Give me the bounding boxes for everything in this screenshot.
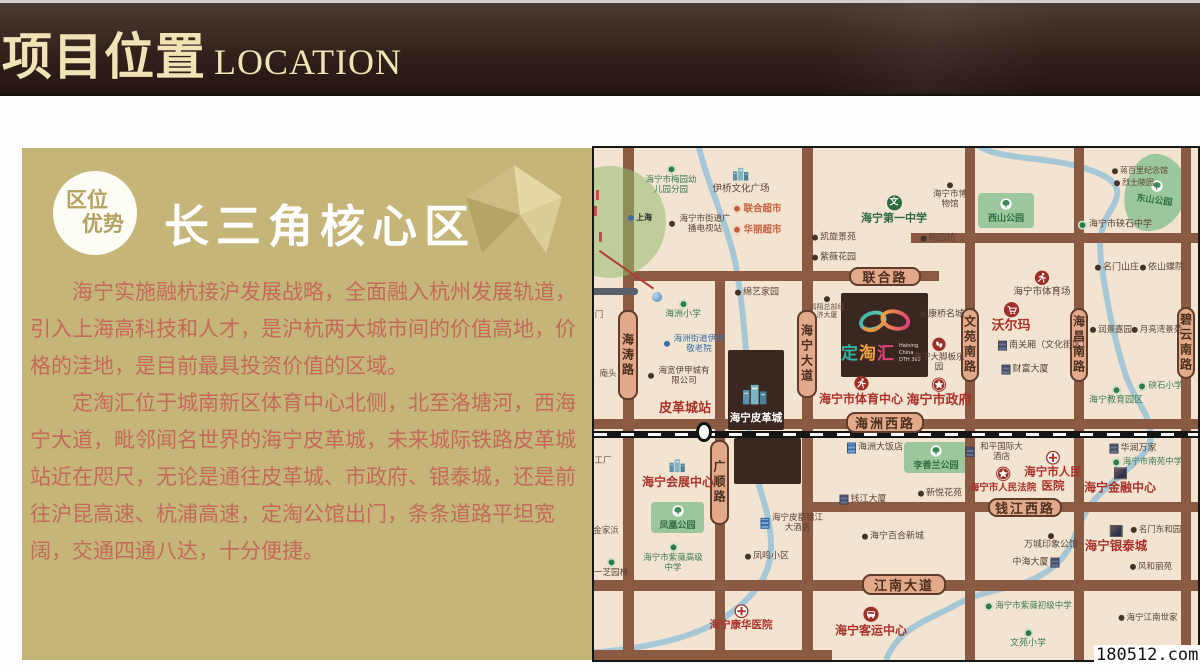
map-poi: 风和丽苑 xyxy=(1130,562,1172,572)
hotel-icon xyxy=(761,518,770,529)
map-poi: 紫薇花园 xyxy=(812,253,856,264)
inset-tiny-text xyxy=(594,206,597,216)
building-photo-icon xyxy=(1109,525,1122,537)
park: 西山公园 xyxy=(978,193,1034,228)
map-poi: 皮革城站 xyxy=(659,401,711,417)
map-poi: 海宁市梅园幼儿园分园 xyxy=(643,165,699,195)
dingtaohui-logo-icon xyxy=(854,306,916,336)
map-poi: 海宁市硖石中学 xyxy=(1078,220,1152,231)
map-poi: 蒋百里纪念馆 xyxy=(1112,166,1168,176)
map-poi: 海宁客运中心 xyxy=(835,606,907,637)
location-map: 西山公园东山公园凤凰公园李善兰公园海涛路广顺路海宁大道文苑南路海昌南路碧云南路联… xyxy=(592,146,1200,662)
buildings-icon xyxy=(730,165,752,182)
park-name: 西山公园 xyxy=(988,211,1024,224)
road-name: 碧云南路 xyxy=(1178,313,1195,373)
intro-paragraph-2: 定淘汇位于城南新区体育中心北侧，北至洛塘河，西海宁大道，毗邻闻名世界的海宁皮革城… xyxy=(30,385,586,570)
building-icon xyxy=(1109,444,1118,454)
map-poi-label: 海宁市政府 xyxy=(906,393,971,409)
page-title: 项目位置LOCATION xyxy=(2,17,402,89)
map-poi: 绵艺家园 xyxy=(735,288,779,299)
map-poi-label: 海宁江南世家 xyxy=(1126,613,1177,623)
dingtaohui-logo-text: 定淘汇 xyxy=(841,339,895,364)
map-poi-label: 华丽超市 xyxy=(743,224,781,235)
school-wen-icon: 文 xyxy=(887,195,902,210)
map-poi: 工厂 xyxy=(594,456,611,466)
map-poi: 润景嘉园 xyxy=(1090,325,1132,335)
map-poi-label: 绵艺家园 xyxy=(743,288,779,299)
map-poi: 名门山庄 xyxy=(1095,263,1139,274)
government-star-icon xyxy=(931,377,946,392)
map-poi-label: 金家浜 xyxy=(593,526,619,536)
intro-text: 海宁实施融杭接沪发展战略，全面融入杭州发展轨道，引入上海高科技和人才，是沪杭两大… xyxy=(30,274,586,570)
shopping-cart-icon xyxy=(1003,302,1019,318)
map-poi: 华润万家 xyxy=(1109,444,1156,455)
poi-dot-icon xyxy=(1131,527,1137,533)
map-poi-label: 鸿翔总部经济大厦 xyxy=(807,303,847,320)
hospital-cross-icon xyxy=(1046,451,1060,465)
map-poi-label: 皮革城站 xyxy=(659,401,711,417)
map-poi: 凯旋景苑 xyxy=(812,233,856,244)
map-poi: 伊桥文化广场 xyxy=(712,165,769,194)
inset-bridge-bar xyxy=(592,288,638,295)
map-poi-label: 梅园坊 xyxy=(928,234,955,245)
city-block xyxy=(734,438,801,484)
poi-dot-icon xyxy=(918,491,924,497)
market-icon xyxy=(732,225,741,234)
map-poi: 中海大厦 xyxy=(1012,558,1059,569)
header: 项目位置LOCATION xyxy=(0,0,1200,96)
map-poi: 南关厢（文化街区） xyxy=(998,341,1090,352)
map-poi-label: 海宁市紫薇高级中学 xyxy=(641,553,705,573)
map-poi: 文海宁第一中学 xyxy=(861,195,927,224)
map-poi: 门 xyxy=(595,310,604,320)
road-horizontal xyxy=(594,650,832,660)
map-poi-label: 海宁百合新城 xyxy=(870,532,924,543)
school-dot-icon xyxy=(606,558,615,567)
map-poi-label: 海宁市南苑中学 xyxy=(1123,457,1183,467)
map-poi: 海宁百合新城 xyxy=(862,532,924,543)
map-poi-label: 硖石小学 xyxy=(1148,381,1182,391)
map-poi: 文苑小学 xyxy=(1010,629,1046,650)
map-poi-label: 和平国际大酒店 xyxy=(977,442,1027,462)
map-poi-label: 海宁市硖石中学 xyxy=(1089,220,1152,231)
bus-icon xyxy=(863,606,879,622)
leather-city-label: 海宁皮革城 xyxy=(730,410,783,425)
map-poi: 海宁皮都锦江大酒店 xyxy=(761,513,824,533)
watermark: 180512.com xyxy=(1094,645,1200,665)
school-dot-icon xyxy=(1112,458,1121,467)
poi-dot-icon xyxy=(1090,327,1096,333)
map-poi-label: 凯旋景苑 xyxy=(820,233,856,244)
building-icon xyxy=(966,447,975,457)
map-poi-label: 新悦花苑 xyxy=(926,489,962,500)
inset-marker-ball xyxy=(652,292,662,302)
building-photo-icon xyxy=(1113,467,1126,479)
map-poi: 财富大厦 xyxy=(1001,365,1048,376)
map-poi-label: 沃尔玛 xyxy=(991,319,1030,335)
map-poi-label: 月亮湾景苑 xyxy=(1140,325,1183,335)
map-poi: 名门东和园 xyxy=(1131,525,1182,535)
blue-dot-icon xyxy=(664,341,670,347)
poi-dot-icon xyxy=(920,312,926,318)
map-poi-label: 烈士陵园 xyxy=(1122,178,1154,188)
map-poi-label: 海宁会展中心 xyxy=(642,475,714,489)
map-poi-label: 海洲街道伊桥敬老院 xyxy=(672,334,726,354)
railway-station-marker xyxy=(696,422,712,442)
map-poi-label: 海宁市街道广播电视站 xyxy=(677,214,733,234)
map-poi-label: 伊桥文化广场 xyxy=(712,183,769,194)
map-poi: 海洲大饭店 xyxy=(847,443,903,454)
map-poi: 海宁大脚板乐园 xyxy=(911,337,967,372)
map-poi-label: 海宁大脚板乐园 xyxy=(911,352,967,372)
map-poi: 依山蝶院 xyxy=(1140,263,1184,274)
poi-dot-icon xyxy=(812,235,818,241)
map-poi: 海宁市街道广播电视站 xyxy=(669,214,733,234)
map-poi: 海宁市紫薇初级中学 xyxy=(984,601,1072,611)
map-poi-label: 工厂 xyxy=(594,456,611,466)
badge-line2: 优势 xyxy=(82,213,124,237)
map-poi-label: 名门山庄 xyxy=(1103,263,1139,274)
map-poi: 海宁市人民医院 xyxy=(1024,451,1082,494)
map-poi-label: 海宁皮都锦江大酒店 xyxy=(772,513,824,533)
map-poi-label: 风和丽苑 xyxy=(1138,562,1172,572)
road-name: 海涛路 xyxy=(620,333,637,378)
map-poi: 联合超市 xyxy=(732,203,781,214)
map-poi: 一芝园林 xyxy=(594,558,628,578)
poi-dot-icon xyxy=(920,236,926,242)
map-poi-label: 海宽伊甲城有限公司 xyxy=(656,366,712,386)
road-name: 联合路 xyxy=(862,267,907,286)
map-poi-label: 庵头 xyxy=(599,369,616,379)
map-poi-label: 南关厢（文化街区） xyxy=(1009,341,1090,352)
road-label: 碧云南路 xyxy=(1177,307,1195,379)
map-poi: 沃尔玛 xyxy=(991,302,1030,335)
park-name: 东山公园 xyxy=(1136,190,1173,208)
building-icon xyxy=(1051,558,1060,568)
sports-runner-icon xyxy=(853,376,868,391)
map-poi-label: 财富大厦 xyxy=(1012,365,1048,376)
poi-dot-icon xyxy=(862,534,868,540)
map-poi-label: 海宁市梅园幼儿园分园 xyxy=(643,175,699,195)
map-poi: 海宁市体育中心 xyxy=(819,376,903,406)
road-label: 江南大道 xyxy=(862,574,946,595)
map-poi-label: 依山蝶院 xyxy=(1148,263,1184,274)
hotel-icon xyxy=(847,443,856,454)
map-poi-label: 海宁市博物馆 xyxy=(932,189,968,209)
map-poi: 硖石小学 xyxy=(1137,381,1182,391)
map-poi: 华丽超市 xyxy=(732,224,781,235)
poi-dot-icon xyxy=(1112,168,1118,174)
map-poi-label: 海宁客运中心 xyxy=(835,623,907,637)
map-poi-label: 一芝园林 xyxy=(594,568,628,578)
map-poi: 海宁会展中心 xyxy=(642,457,714,489)
park-tree-icon xyxy=(930,445,942,457)
school-dot-icon xyxy=(1078,220,1087,229)
advantage-badge: 区位 优势 xyxy=(53,171,137,255)
road-label: 海洲西路 xyxy=(846,412,924,433)
park-tree-icon xyxy=(672,505,684,517)
poi-dot-icon xyxy=(669,221,675,227)
school-dot-icon xyxy=(984,602,993,611)
map-poi-label: 康桥名城 xyxy=(928,310,964,321)
map-poi-label: 文苑小学 xyxy=(1010,639,1046,650)
map-poi: 钱江大厦 xyxy=(839,495,886,506)
map-poi: 新悦花苑 xyxy=(918,489,962,500)
map-poi: 海宁康华医院 xyxy=(710,604,773,632)
poi-dot-icon xyxy=(648,373,654,379)
inset-tiny-text xyxy=(599,232,602,242)
park: 李善兰公园 xyxy=(904,442,968,473)
railway-dashes xyxy=(594,433,1198,436)
road-name: 海宁大道 xyxy=(799,324,816,384)
map-poi: 海宁市体育场 xyxy=(1013,270,1070,297)
map-poi-label: 海宁市体育场 xyxy=(1013,286,1070,297)
poi-dot-icon xyxy=(745,554,751,560)
map-poi-label: 名门东和园 xyxy=(1139,525,1182,535)
building-icon xyxy=(1001,365,1010,375)
map-poi: 海宁江南世家 xyxy=(1118,613,1177,623)
shanghai-label: 上海 xyxy=(628,212,652,223)
map-poi-label: 海宁市人民医院 xyxy=(1024,466,1082,494)
badge-line1: 区位 xyxy=(66,189,108,213)
park-tree-icon xyxy=(1000,198,1012,210)
school-dot-icon xyxy=(669,543,678,552)
map-poi: 凤鸣小区 xyxy=(745,552,789,563)
map-poi: 海宁市紫薇高级中学 xyxy=(641,543,705,573)
map-poi: 烈士陵园 xyxy=(1114,178,1154,188)
leather-city-block: 海宁皮革城 xyxy=(728,350,784,430)
map-poi-label: 海洲小学 xyxy=(665,310,701,321)
map-poi-label: 中海大厦 xyxy=(1012,558,1048,569)
panel-title: 长三角核心区 xyxy=(164,190,476,255)
map-poi-label: 海宁教育园区 xyxy=(1089,396,1143,407)
page-title-en: LOCATION xyxy=(214,42,402,82)
map-poi-label: 紫薇花园 xyxy=(820,253,856,264)
map-poi-label: 海宁第一中学 xyxy=(861,211,927,224)
map-poi-label: 海宁市体育中心 xyxy=(819,392,903,406)
map-poi: 万城印象公馆 xyxy=(1024,533,1078,551)
page: 项目位置LOCATION 区位 优势 长三角核心区 海宁实施融杭接沪发展战略，全… xyxy=(0,0,1200,672)
map-poi-label: 海宁康华医院 xyxy=(710,619,773,632)
park: 凤凰公园 xyxy=(651,502,704,533)
school-dot-icon xyxy=(678,300,687,309)
map-poi: 金家浜 xyxy=(593,526,619,536)
poi-dot-icon xyxy=(947,182,953,188)
poi-dot-icon xyxy=(735,290,741,296)
map-poi: 和平国际大酒店 xyxy=(966,442,1027,462)
map-poi: 月亮湾景苑 xyxy=(1132,325,1183,335)
map-poi-label: 钱江大厦 xyxy=(850,495,886,506)
map-poi: 海洲街道伊桥敬老院 xyxy=(664,334,726,354)
map-poi-label: 润景嘉园 xyxy=(1098,325,1132,335)
map-poi: 海宁市政府 xyxy=(906,377,971,409)
park-name: 李善兰公园 xyxy=(913,458,958,471)
map-poi-label: 门 xyxy=(595,310,604,320)
buildings-icon xyxy=(667,457,689,474)
poi-dot-icon xyxy=(1118,615,1124,621)
poi-dot-icon xyxy=(1048,533,1054,539)
map-poi-label: 万城印象公馆 xyxy=(1024,540,1078,551)
city-dot-icon xyxy=(628,215,634,221)
building-icon xyxy=(998,341,1007,351)
inset-tiny-text xyxy=(596,190,599,200)
poi-dot-icon xyxy=(1140,265,1146,271)
buildings-icon xyxy=(739,381,773,407)
map-poi-label: 凤鸣小区 xyxy=(753,552,789,563)
intro-panel: 区位 优势 长三角核心区 海宁实施融杭接沪发展战略，全面融入杭州发展轨道，引入上… xyxy=(22,148,592,660)
poi-dot-icon xyxy=(824,296,830,302)
poi-dot-icon xyxy=(812,255,818,261)
sports-runner-icon xyxy=(1034,270,1049,285)
market-icon xyxy=(732,204,741,213)
government-star-icon xyxy=(995,466,1010,481)
school-dot-icon xyxy=(1111,386,1120,395)
road-label: 钱江西路 xyxy=(988,498,1062,517)
building-icon xyxy=(839,495,848,505)
road-label: 海宁大道 xyxy=(797,310,817,398)
road-label: 海涛路 xyxy=(618,310,638,400)
road-name: 海洲西路 xyxy=(855,413,915,432)
road-label: 联合路 xyxy=(849,267,921,286)
road-name: 江南大道 xyxy=(874,575,934,594)
gem-decoration-icon xyxy=(458,163,570,263)
page-title-cn: 项目位置 xyxy=(2,29,206,85)
poi-dot-icon xyxy=(1132,327,1138,333)
map-poi: 海宽伊甲城有限公司 xyxy=(648,366,712,386)
map-poi: 海宁市博物馆 xyxy=(932,182,968,209)
map-poi: 庵头 xyxy=(599,369,616,379)
map-poi-label: 联合超市 xyxy=(743,203,781,214)
hospital-cross-icon xyxy=(734,604,748,618)
map-poi: 鸿翔总部经济大厦 xyxy=(807,296,847,320)
map-poi-label: 海宁银泰城 xyxy=(1085,538,1148,553)
map-poi-label: 蒋百里纪念馆 xyxy=(1120,166,1168,176)
intro-paragraph-1: 海宁实施融杭接沪发展战略，全面融入杭州发展轨道，引入上海高科技和人才，是沪杭两大… xyxy=(30,274,586,385)
map-poi-label: 海洲大饭店 xyxy=(858,443,903,454)
map-poi: 康桥名城 xyxy=(920,310,964,321)
map-poi-label: 海宁市紫薇初级中学 xyxy=(995,601,1072,611)
map-poi: 海宁市南苑中学 xyxy=(1112,457,1183,467)
school-dot-icon xyxy=(667,165,676,174)
map-poi: 海宁金融中心 xyxy=(1084,467,1156,494)
map-poi: 海洲小学 xyxy=(665,300,701,321)
road-name: 钱江西路 xyxy=(995,498,1055,517)
poi-dot-icon xyxy=(1130,564,1136,570)
map-poi: 海宁教育园区 xyxy=(1089,386,1143,407)
school-dot-icon xyxy=(1023,629,1032,638)
poi-dot-icon xyxy=(1095,265,1101,271)
footprint-icon xyxy=(932,337,946,351)
shanghai-text: 上海 xyxy=(636,212,652,223)
map-poi-label: 海宁金融中心 xyxy=(1084,480,1156,494)
poi-dot-icon xyxy=(1114,180,1120,186)
map-poi-label: 华润万家 xyxy=(1120,444,1156,455)
map-poi: 梅园坊 xyxy=(920,234,955,245)
park-name: 凤凰公园 xyxy=(659,518,695,531)
